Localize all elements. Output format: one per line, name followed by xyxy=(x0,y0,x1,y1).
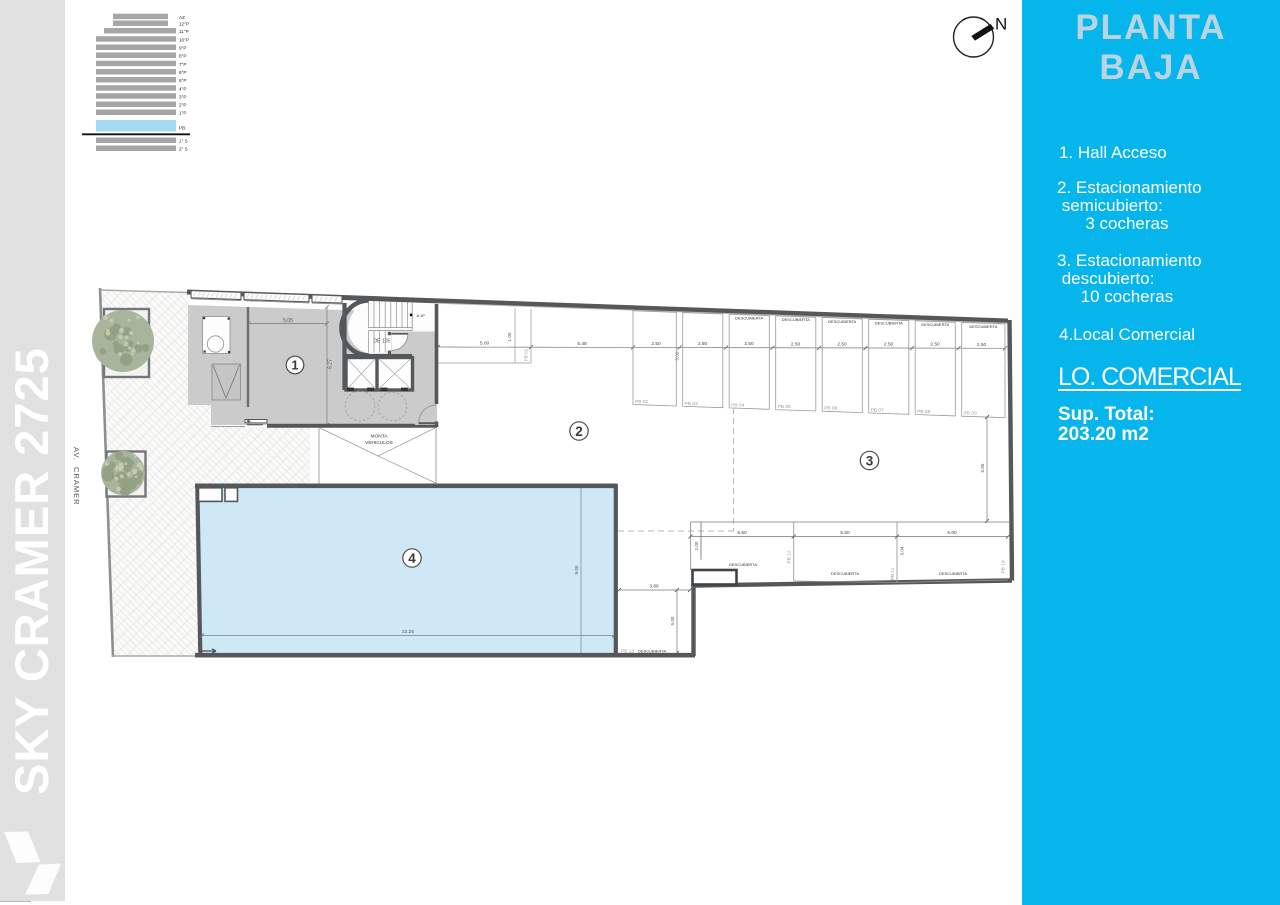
svg-text:5°P: 5°P xyxy=(179,78,186,83)
svg-text:2.50: 2.50 xyxy=(791,341,801,347)
svg-text:PB 04: PB 04 xyxy=(731,402,744,408)
svg-text:PB 12: PB 12 xyxy=(787,550,793,563)
svg-text:5.50: 5.50 xyxy=(737,530,747,536)
svg-text:PB 01: PB 01 xyxy=(524,348,529,361)
svg-text:4: 4 xyxy=(408,551,416,566)
svg-text:5.50: 5.50 xyxy=(840,530,850,536)
svg-text:DESCUBIERTA: DESCUBIERTA xyxy=(729,562,757,567)
svg-text:3°P: 3°P xyxy=(179,94,186,99)
svg-text:2.50: 2.50 xyxy=(744,341,754,347)
svg-text:DE 105: DE 105 xyxy=(374,339,391,345)
svg-text:2: 2 xyxy=(575,424,583,439)
svg-text:2.50: 2.50 xyxy=(837,341,847,347)
svg-text:DESCUBIERTA: DESCUBIERTA xyxy=(828,319,856,324)
svg-text:12°P: 12°P xyxy=(179,22,189,27)
svg-text:5.00: 5.00 xyxy=(480,341,490,347)
svg-text:5.48: 5.48 xyxy=(577,341,587,347)
svg-text:11°P: 11°P xyxy=(179,29,189,34)
svg-text:DESCUBIERTA: DESCUBIERTA xyxy=(939,571,967,576)
svg-text:PB 08: PB 08 xyxy=(917,409,930,415)
svg-text:DESCUBIERTA: DESCUBIERTA xyxy=(969,324,997,329)
svg-text:DESCUBIERTA: DESCUBIERTA xyxy=(782,317,810,322)
svg-text:3.86: 3.86 xyxy=(649,584,659,590)
svg-text:22.25: 22.25 xyxy=(402,629,414,635)
svg-text:PB 02: PB 02 xyxy=(635,399,648,405)
svg-text:3: 3 xyxy=(866,453,874,468)
svg-text:1: 1 xyxy=(291,358,298,373)
svg-text:5.85: 5.85 xyxy=(980,463,985,472)
svg-text:2° S: 2° S xyxy=(179,147,188,152)
svg-text:5.05: 5.05 xyxy=(283,318,293,324)
svg-text:10°P: 10°P xyxy=(179,37,189,42)
svg-text:9.00: 9.00 xyxy=(574,565,579,574)
svg-text:N: N xyxy=(995,15,1007,34)
svg-text:9°P: 9°P xyxy=(179,46,186,51)
svg-text:6.00: 6.00 xyxy=(947,530,957,536)
svg-text:MONTA: MONTA xyxy=(371,434,389,440)
svg-text:2.00: 2.00 xyxy=(694,541,699,550)
svg-text:1°P: 1°P xyxy=(179,111,186,116)
svg-text:DESCUBIERTA: DESCUBIERTA xyxy=(638,649,666,654)
svg-text:DESCUBIERTA: DESCUBIERTA xyxy=(875,321,903,326)
svg-text:8°P: 8°P xyxy=(179,54,186,59)
svg-text:DESCUBIERTA: DESCUBIERTA xyxy=(831,571,859,576)
svg-text:7°P: 7°P xyxy=(179,62,186,67)
svg-text:PB 05: PB 05 xyxy=(778,404,791,410)
svg-text:PB 07: PB 07 xyxy=(871,407,884,413)
svg-text:PB 11: PB 11 xyxy=(890,567,896,580)
svg-text:PB 03: PB 03 xyxy=(685,401,698,407)
svg-text:2°P: 2°P xyxy=(179,103,186,108)
svg-text:DESCUBIERTA: DESCUBIERTA xyxy=(921,322,949,327)
svg-text:VEHICULOS: VEHICULOS xyxy=(365,440,393,446)
svg-text:AZ: AZ xyxy=(179,15,185,20)
svg-text:6.27: 6.27 xyxy=(328,359,334,369)
svg-text:5.00: 5.00 xyxy=(670,616,675,625)
svg-text:2.50: 2.50 xyxy=(698,341,708,347)
svg-text:4°P: 4°P xyxy=(179,86,186,91)
svg-text:A 1P: A 1P xyxy=(417,313,426,318)
svg-text:2.50: 2.50 xyxy=(930,342,940,348)
svg-text:1.00: 1.00 xyxy=(507,332,512,341)
svg-text:2.50: 2.50 xyxy=(651,341,661,347)
svg-text:1° S: 1° S xyxy=(179,139,188,144)
svg-text:PB 06: PB 06 xyxy=(824,406,837,412)
svg-text:6°P: 6°P xyxy=(179,70,186,75)
svg-text:3.04: 3.04 xyxy=(900,546,905,555)
svg-text:2.50: 2.50 xyxy=(884,342,894,348)
svg-text:5.00: 5.00 xyxy=(675,351,680,360)
svg-text:PB 10: PB 10 xyxy=(1001,560,1007,573)
svg-text:2.50: 2.50 xyxy=(977,342,987,348)
svg-text:PB: PB xyxy=(179,126,185,131)
svg-text:PB 09: PB 09 xyxy=(964,411,977,417)
svg-text:DESCUBIERTA: DESCUBIERTA xyxy=(735,316,763,321)
